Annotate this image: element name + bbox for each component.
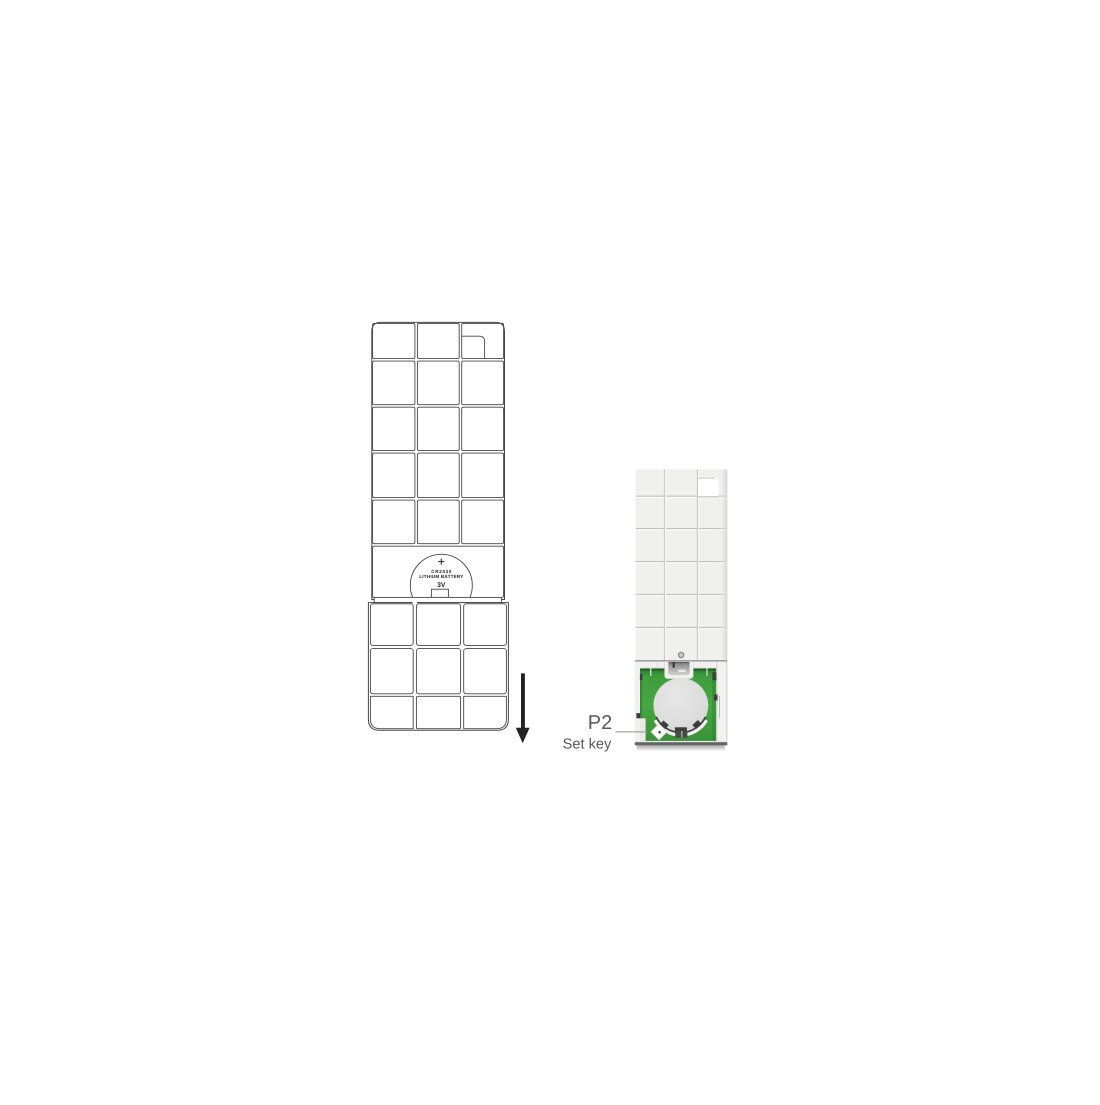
svg-text:LITHIUM BATTERY: LITHIUM BATTERY: [419, 574, 463, 579]
svg-text:P2: P2: [588, 712, 612, 734]
svg-text:CR2430: CR2430: [431, 569, 451, 574]
svg-text:Set key: Set key: [563, 737, 612, 753]
svg-text:3V: 3V: [437, 582, 446, 589]
